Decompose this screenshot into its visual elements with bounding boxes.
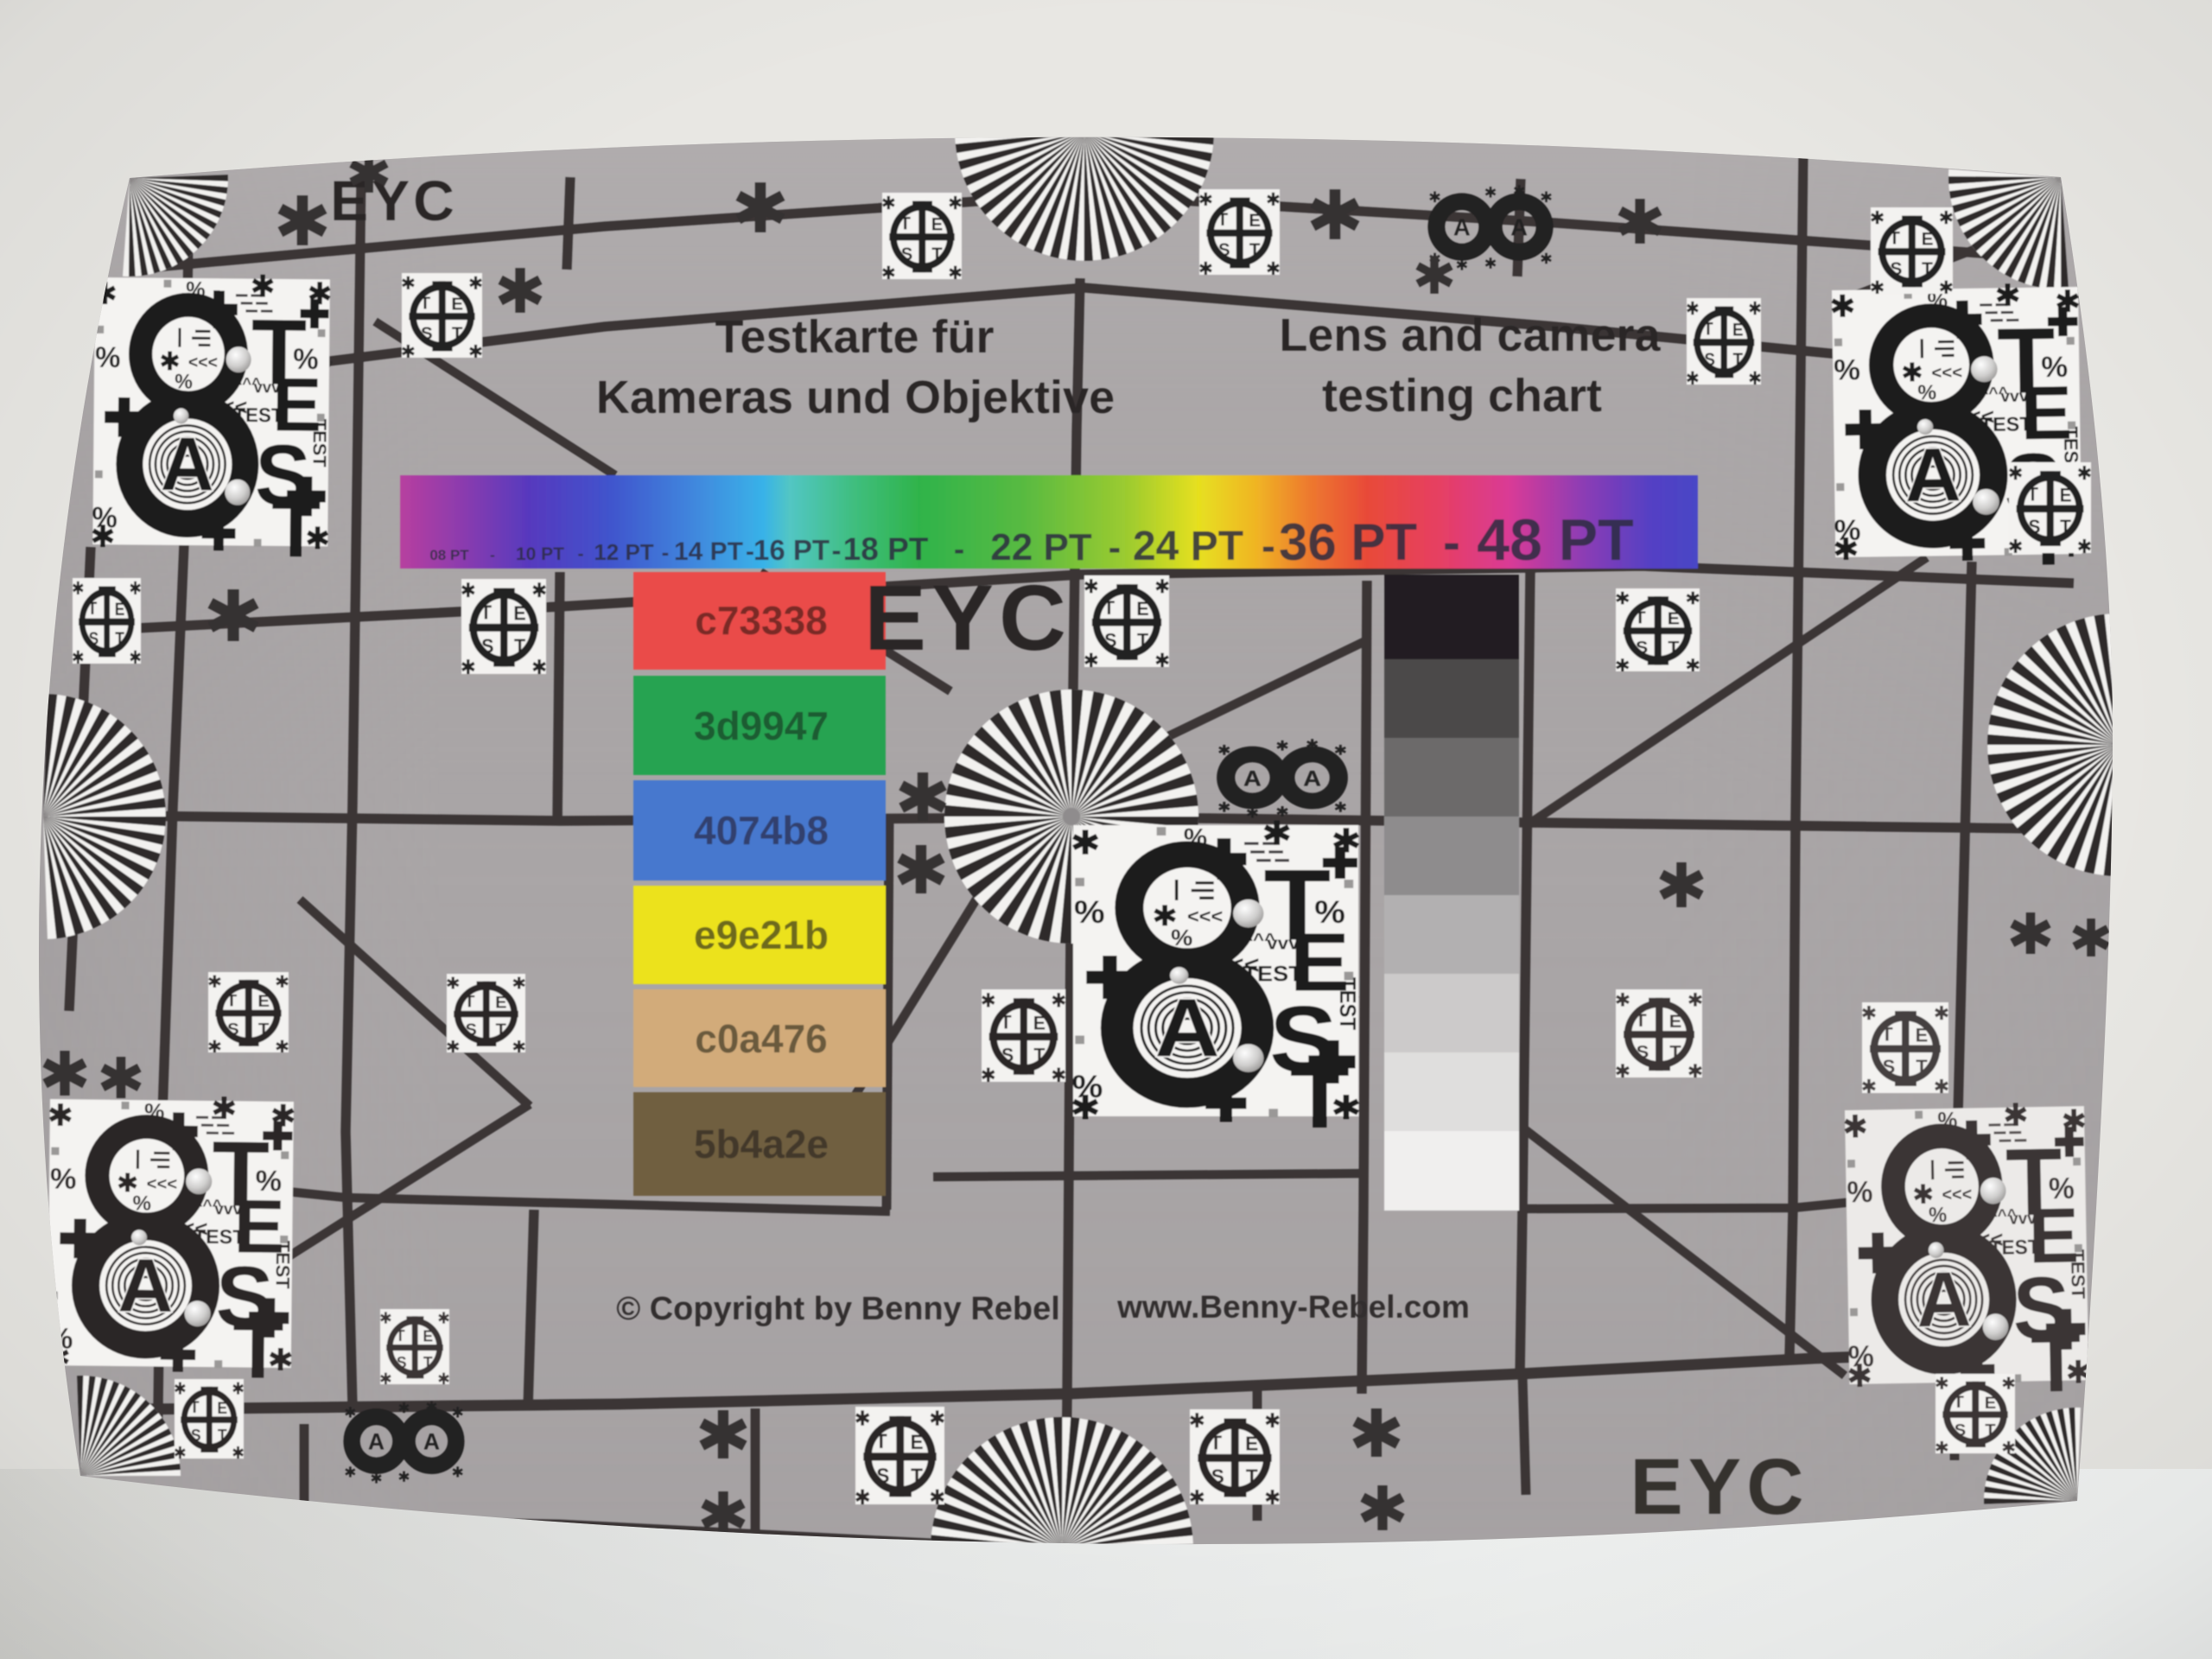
svg-text:S: S (1704, 350, 1715, 370)
svg-text:S: S (876, 1464, 889, 1487)
svg-text:S: S (397, 1353, 407, 1370)
svg-text:E: E (931, 214, 944, 235)
svg-text:<<<: <<< (209, 395, 247, 420)
svg-text:E: E (115, 600, 125, 620)
svg-text:T: T (88, 599, 98, 619)
svg-text:T: T (218, 1426, 227, 1445)
svg-text:Lens and camera: Lens and camera (1279, 309, 1661, 361)
svg-text:TEST: TEST (1335, 977, 1360, 1030)
svg-text:<<<: <<< (1213, 952, 1260, 980)
svg-text:T: T (1249, 240, 1261, 260)
svg-text:E: E (1245, 1432, 1258, 1454)
svg-text:S: S (1218, 240, 1230, 260)
svg-text:EYC: EYC (330, 168, 458, 232)
svg-text:<<<: <<< (1931, 364, 1962, 383)
svg-text:vvv: vvv (1267, 933, 1299, 953)
svg-text:T: T (900, 213, 912, 234)
svg-text:T: T (1669, 1041, 1681, 1063)
svg-text:T: T (514, 635, 525, 658)
svg-text:T: T (226, 992, 238, 1011)
svg-text:S: S (1955, 1421, 1967, 1440)
svg-text:S: S (1890, 259, 1902, 279)
svg-text:<<<: <<< (1964, 1226, 2004, 1253)
svg-text:S: S (1637, 1041, 1649, 1063)
svg-text:A: A (368, 1429, 385, 1455)
svg-text:A: A (1916, 1255, 1972, 1344)
svg-text:Kameras und Objektive: Kameras und Objektive (596, 372, 1115, 423)
svg-text:Testkarte für: Testkarte für (715, 311, 994, 363)
svg-text:T: T (423, 1353, 433, 1370)
svg-text:E: E (1249, 211, 1261, 231)
svg-text:T: T (1001, 1011, 1013, 1033)
svg-text:T: T (452, 323, 463, 343)
svg-text:T: T (115, 630, 124, 650)
svg-text:T: T (1033, 1044, 1046, 1066)
svg-text:T: T (258, 1020, 270, 1039)
svg-text:%: % (1917, 381, 1936, 404)
svg-text:vvv: vvv (214, 1200, 243, 1218)
svg-text:T: T (464, 993, 474, 1012)
svg-text:S: S (1104, 629, 1116, 651)
svg-text:<<<: <<< (168, 1216, 207, 1242)
svg-text:S: S (89, 630, 99, 650)
svg-text:T: T (1954, 1393, 1964, 1412)
svg-text:%: % (175, 371, 193, 394)
svg-text:testing chart: testing chart (1322, 370, 1602, 422)
svg-text:A: A (423, 1429, 440, 1455)
svg-text:T: T (1985, 1421, 1995, 1440)
svg-text:%: % (1074, 894, 1105, 930)
svg-text:%: % (132, 1192, 151, 1215)
svg-text:E: E (1136, 597, 1148, 619)
svg-text:T: T (1881, 1023, 1893, 1045)
svg-text:E: E (911, 1430, 924, 1453)
svg-text:S: S (227, 1020, 239, 1039)
svg-text:T: T (480, 601, 492, 624)
svg-text:S: S (421, 323, 433, 343)
svg-text:T: T (1290, 1046, 1350, 1147)
svg-text:T: T (271, 482, 321, 575)
svg-text:E: E (1668, 609, 1680, 628)
svg-text:T: T (1922, 259, 1933, 279)
svg-text:T: T (496, 1020, 506, 1039)
svg-text:T: T (1635, 1009, 1647, 1031)
svg-text:T: T (1217, 210, 1229, 230)
svg-text:E: E (1916, 1024, 1929, 1046)
svg-text:c0a476: c0a476 (695, 1016, 828, 1061)
svg-text:S: S (1001, 1044, 1014, 1066)
svg-text:T: T (1635, 608, 1646, 627)
svg-text:E: E (257, 993, 270, 1012)
svg-text:T: T (931, 245, 943, 265)
svg-text:www.Benny-Rebel.com: www.Benny-Rebel.com (1116, 1289, 1470, 1325)
svg-text:S: S (1211, 1465, 1224, 1488)
svg-text:<<<: <<< (188, 353, 218, 372)
svg-text:T: T (1703, 319, 1713, 339)
svg-text:vvv: vvv (2009, 1210, 2037, 1229)
svg-text:E: E (1033, 1012, 1046, 1034)
svg-text:S: S (481, 635, 493, 658)
svg-text:A: A (1155, 982, 1220, 1074)
svg-text:c73338: c73338 (695, 598, 828, 643)
svg-text:A: A (161, 423, 215, 507)
svg-text:5b4a2e: 5b4a2e (694, 1122, 829, 1166)
svg-text:S: S (1636, 638, 1648, 657)
svg-text:T: T (1246, 1465, 1258, 1488)
svg-text:T: T (1103, 596, 1116, 618)
svg-text:E: E (1732, 320, 1744, 340)
svg-text:E: E (513, 602, 525, 625)
svg-text:TEST: TEST (2067, 1249, 2089, 1300)
svg-text:%: % (1171, 925, 1192, 950)
svg-text:EYC: EYC (864, 565, 1071, 670)
svg-text:%: % (1834, 354, 1860, 387)
svg-text:T: T (911, 1464, 923, 1487)
svg-text:A: A (1510, 214, 1528, 241)
svg-text:<<<: <<< (1942, 1185, 1972, 1205)
svg-text:TEST: TEST (309, 419, 331, 467)
svg-text:A: A (1453, 214, 1471, 241)
svg-text:%: % (50, 1163, 77, 1196)
svg-text:e9e21b: e9e21b (694, 912, 829, 957)
svg-text:vvv: vvv (253, 378, 281, 397)
svg-text:E: E (1922, 229, 1934, 249)
svg-text:A: A (1303, 766, 1321, 791)
svg-text:TEST: TEST (272, 1241, 295, 1290)
svg-text:T: T (1210, 1431, 1222, 1453)
svg-text:E: E (217, 1398, 227, 1417)
svg-text:T: T (1889, 228, 1900, 248)
svg-text:S: S (191, 1426, 201, 1445)
svg-text:T: T (1137, 629, 1149, 651)
svg-text:E: E (451, 294, 463, 314)
svg-text:<<<: <<< (147, 1175, 178, 1194)
svg-text:%: % (95, 341, 121, 374)
svg-text:%: % (1929, 1204, 1948, 1228)
svg-text:vvv: vvv (2000, 388, 2029, 406)
svg-text:EYC: EYC (1630, 1443, 1808, 1531)
svg-text:S: S (901, 245, 913, 265)
svg-text:T: T (2027, 483, 2038, 505)
svg-text:T: T (396, 1326, 405, 1344)
svg-text:T: T (875, 1429, 887, 1452)
svg-text:T: T (1916, 1056, 1928, 1077)
svg-text:S: S (1883, 1056, 1896, 1077)
svg-text:E: E (1985, 1394, 1997, 1413)
svg-text:T: T (1733, 350, 1744, 370)
svg-text:E: E (495, 994, 506, 1013)
svg-text:A: A (1243, 766, 1262, 791)
svg-text:E: E (2060, 484, 2072, 506)
svg-text:E: E (423, 1327, 433, 1344)
svg-text:3d9947: 3d9947 (694, 703, 829, 748)
svg-text:S: S (2028, 515, 2040, 537)
svg-text:4074b8: 4074b8 (694, 808, 829, 853)
svg-text:%: % (1847, 1175, 1873, 1209)
svg-text:A: A (1904, 432, 1961, 518)
svg-text:E: E (1669, 1010, 1682, 1032)
svg-text:<<<: <<< (1187, 906, 1223, 927)
svg-text:© Copyright by Benny Rebel: © Copyright by Benny Rebel (616, 1291, 1060, 1327)
svg-text:T: T (1668, 638, 1679, 657)
svg-text:T: T (2031, 1315, 2082, 1410)
svg-text:T: T (2060, 515, 2071, 537)
svg-text:<<<: <<< (1955, 404, 1995, 429)
svg-text:T: T (190, 1397, 200, 1416)
svg-text:A: A (118, 1243, 174, 1328)
svg-text:T: T (420, 293, 431, 313)
svg-text:S: S (466, 1020, 477, 1039)
